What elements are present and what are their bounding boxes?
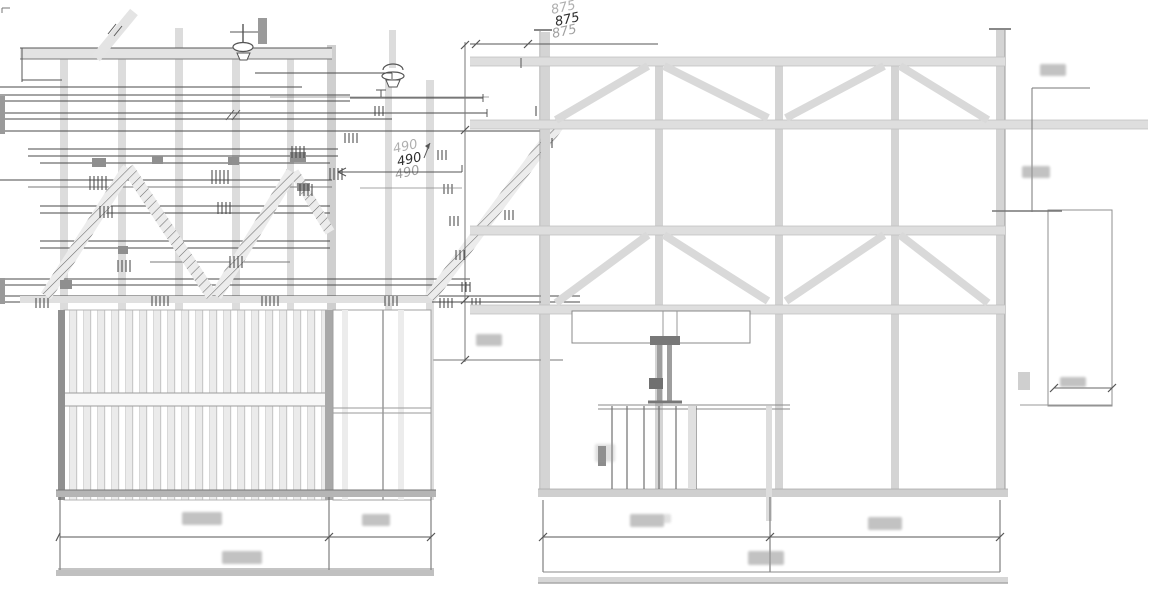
left-elevation: [0, 8, 580, 576]
left-vertical-dimension: [461, 41, 469, 364]
right-elevation: [461, 29, 1148, 583]
right-base: [538, 497, 1008, 583]
left-edge-fragments: [0, 8, 10, 304]
right-side-box: [1018, 210, 1116, 406]
right-rails: [470, 57, 1148, 497]
technical-drawing: 875 875 875 490 490 490: [0, 0, 1154, 596]
right-bracing: [556, 66, 988, 303]
left-bottom-chord: [20, 296, 432, 303]
right-vertical-dimension: [992, 88, 1090, 212]
slat-panel: [58, 310, 333, 500]
dimension-490: 490 490 490: [338, 137, 462, 188]
drawing-canvas: 875 875 875 490 490 490: [0, 0, 1154, 596]
gate-panel: [333, 310, 431, 500]
